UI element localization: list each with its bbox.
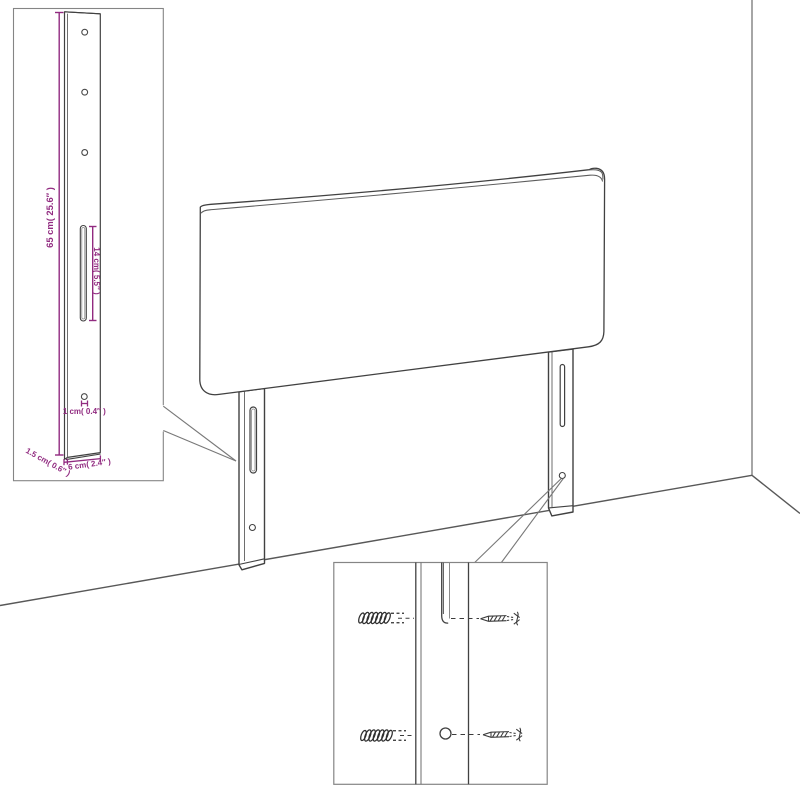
svg-text:65 cm( 25.6″ ): 65 cm( 25.6″ ): [44, 187, 55, 248]
svg-text:14 cm( 5.5″ ): 14 cm( 5.5″ ): [92, 247, 101, 295]
svg-text:1 cm( 0.4″ ): 1 cm( 0.4″ ): [63, 407, 106, 416]
